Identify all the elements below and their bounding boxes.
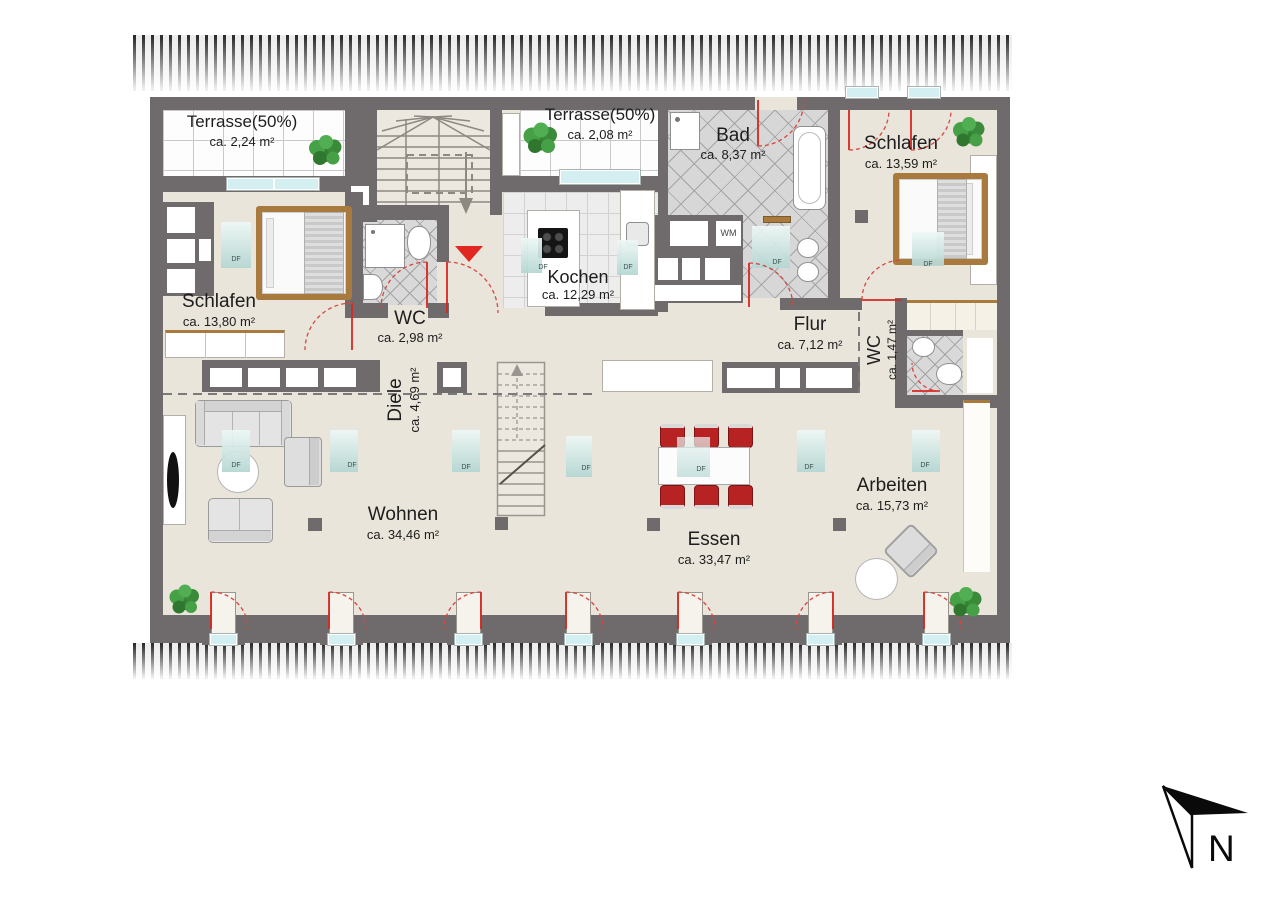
- label-essen-name: Essen: [688, 530, 741, 551]
- door-jamb: [591, 626, 600, 645]
- column-post: [833, 518, 846, 531]
- wall-wc-mid-south-a: [350, 303, 388, 318]
- roof-window-label: DF: [461, 464, 470, 471]
- cabinet-arbeiten-east: [963, 400, 990, 572]
- wall-stair-bottom: [363, 205, 443, 220]
- label-wc-right: WC ca. 1,47 m²: [864, 300, 904, 400]
- window-schlafen-right-1: [846, 87, 878, 98]
- label-kochen-name: Kochen: [547, 268, 608, 288]
- dining-chair: [728, 424, 753, 448]
- stair-side-niche: [502, 113, 520, 176]
- door-jamb: [703, 626, 712, 645]
- shelf-block-west: [163, 202, 214, 296]
- sofa-small: [208, 498, 273, 543]
- roof-window-label: DF: [696, 466, 705, 473]
- wall-bad-east: [828, 97, 840, 310]
- terrace-door-sill: [565, 634, 592, 645]
- roof-window-label: DF: [923, 261, 932, 268]
- roof-hatch-top: [133, 35, 1012, 91]
- label-wohnen-name: Wohnen: [368, 505, 438, 526]
- label-schlafen-left-area: ca. 13,80 m²: [183, 315, 255, 329]
- north-label: N: [1208, 828, 1235, 870]
- window-terrace-mid: [560, 170, 640, 184]
- roof-window-label: DF: [538, 264, 547, 271]
- label-schlafen-left-name: Schlafen: [182, 292, 256, 313]
- round-table-arbeiten: [855, 558, 898, 600]
- column-post: [495, 517, 508, 530]
- label-bad-name: Bad: [716, 126, 750, 147]
- wall-stair-right: [490, 110, 502, 215]
- door-jamb: [833, 626, 842, 645]
- armchair-wohnen: [284, 437, 322, 487]
- door-opening-bad: [755, 97, 797, 110]
- roof-hatch-bottom: [133, 643, 1012, 679]
- label-arbeiten-name: Arbeiten: [857, 476, 928, 497]
- dining-chair: [694, 485, 719, 509]
- floorplan-canvas: WM: [0, 0, 1280, 905]
- dressing-cabinet-right: [907, 300, 997, 330]
- stairwell-floor: [377, 110, 490, 205]
- column-post: [855, 210, 868, 223]
- label-terrasse-mid-area: ca. 2,08 m²: [567, 128, 632, 142]
- roof-window: [752, 226, 790, 268]
- label-wc-mid-area: ca. 2,98 m²: [377, 331, 442, 345]
- wardrobe-schlafen-left: [165, 330, 285, 358]
- bath-sink-1: [797, 238, 819, 258]
- terrace-door-sill: [677, 634, 704, 645]
- roof-window-label: DF: [231, 256, 240, 263]
- wm-closet-block: WM: [653, 215, 743, 303]
- terrace-door-sill: [328, 634, 355, 645]
- column-post: [308, 518, 322, 531]
- label-schlafen-right-name: Schlafen: [864, 134, 938, 155]
- label-kochen-area: ca. 12,29 m²: [542, 288, 614, 302]
- label-terrasse-left-area: ca. 2,24 m²: [209, 135, 274, 149]
- label-arbeiten-area: ca. 15,73 m²: [856, 499, 928, 513]
- roof-window-label: DF: [623, 264, 632, 271]
- wc-mid-toilet: [407, 226, 431, 260]
- roof-window-label: DF: [772, 259, 781, 266]
- bathtub: [793, 126, 826, 210]
- label-essen-area: ca. 33,47 m²: [678, 553, 750, 567]
- wall-wc-right-south: [895, 395, 1010, 408]
- dining-chair: [728, 485, 753, 509]
- window-terrace-left: [227, 178, 319, 190]
- wc-right-niche: [967, 338, 993, 393]
- wc-mid-shower: [365, 224, 405, 268]
- roof-window-label: DF: [581, 465, 590, 472]
- terrace-door-sill: [923, 634, 950, 645]
- label-schlafen-right-area: ca. 13,59 m²: [865, 157, 937, 171]
- door-jamb: [236, 626, 245, 645]
- door-jamb: [354, 626, 363, 645]
- wall-wc-mid-south-b: [428, 303, 449, 318]
- label-wohnen-area: ca. 34,46 m²: [367, 528, 439, 542]
- dining-chair: [660, 485, 685, 509]
- label-diele: Diele ca. 4,69 m²: [385, 345, 429, 455]
- roof-window-label: DF: [347, 462, 356, 469]
- door-jamb: [481, 626, 490, 645]
- terrace-door-sill: [807, 634, 834, 645]
- label-terrasse-left-name: Terrasse(50%): [187, 113, 298, 132]
- label-flur-area: ca. 7,12 m²: [777, 338, 842, 352]
- roof-window-label: DF: [231, 462, 240, 469]
- window-schlafen-right-2: [908, 87, 940, 98]
- shower: [670, 112, 700, 150]
- cooktop: [538, 228, 568, 258]
- wm-label: WM: [721, 228, 737, 238]
- wc-right-sink: [912, 337, 935, 357]
- bath-sink-2: [797, 262, 819, 282]
- wc-mid-sink: [363, 274, 383, 300]
- niche-post: [437, 362, 467, 393]
- wc-right-toilet: [936, 363, 962, 385]
- label-flur-name: Flur: [794, 315, 827, 336]
- label-terrasse-mid-name: Terrasse(50%): [545, 106, 656, 125]
- wall-wc-mid-east: [437, 205, 449, 262]
- label-wc-mid-name: WC: [394, 309, 426, 330]
- bed-schlafen-left: [256, 206, 352, 300]
- terrace-door-sill: [210, 634, 237, 645]
- sideboard-flur: [602, 360, 713, 392]
- door-jamb: [949, 626, 958, 645]
- tv-screen: [167, 452, 179, 508]
- roof-window-label: DF: [920, 462, 929, 469]
- roof-window-label: DF: [804, 464, 813, 471]
- terrace-door-sill: [455, 634, 482, 645]
- shelf-band-flur: [722, 362, 860, 393]
- shelf-band-west: [202, 360, 380, 392]
- label-bad-area: ca. 8,37 m²: [700, 148, 765, 162]
- washing-machine: WM: [716, 221, 741, 246]
- wall-schlafen-right-south: [828, 298, 862, 310]
- wall-bad-south: [780, 298, 828, 310]
- north-arrow: [1163, 786, 1248, 868]
- column-post: [647, 518, 660, 531]
- bath-bench: [763, 216, 791, 223]
